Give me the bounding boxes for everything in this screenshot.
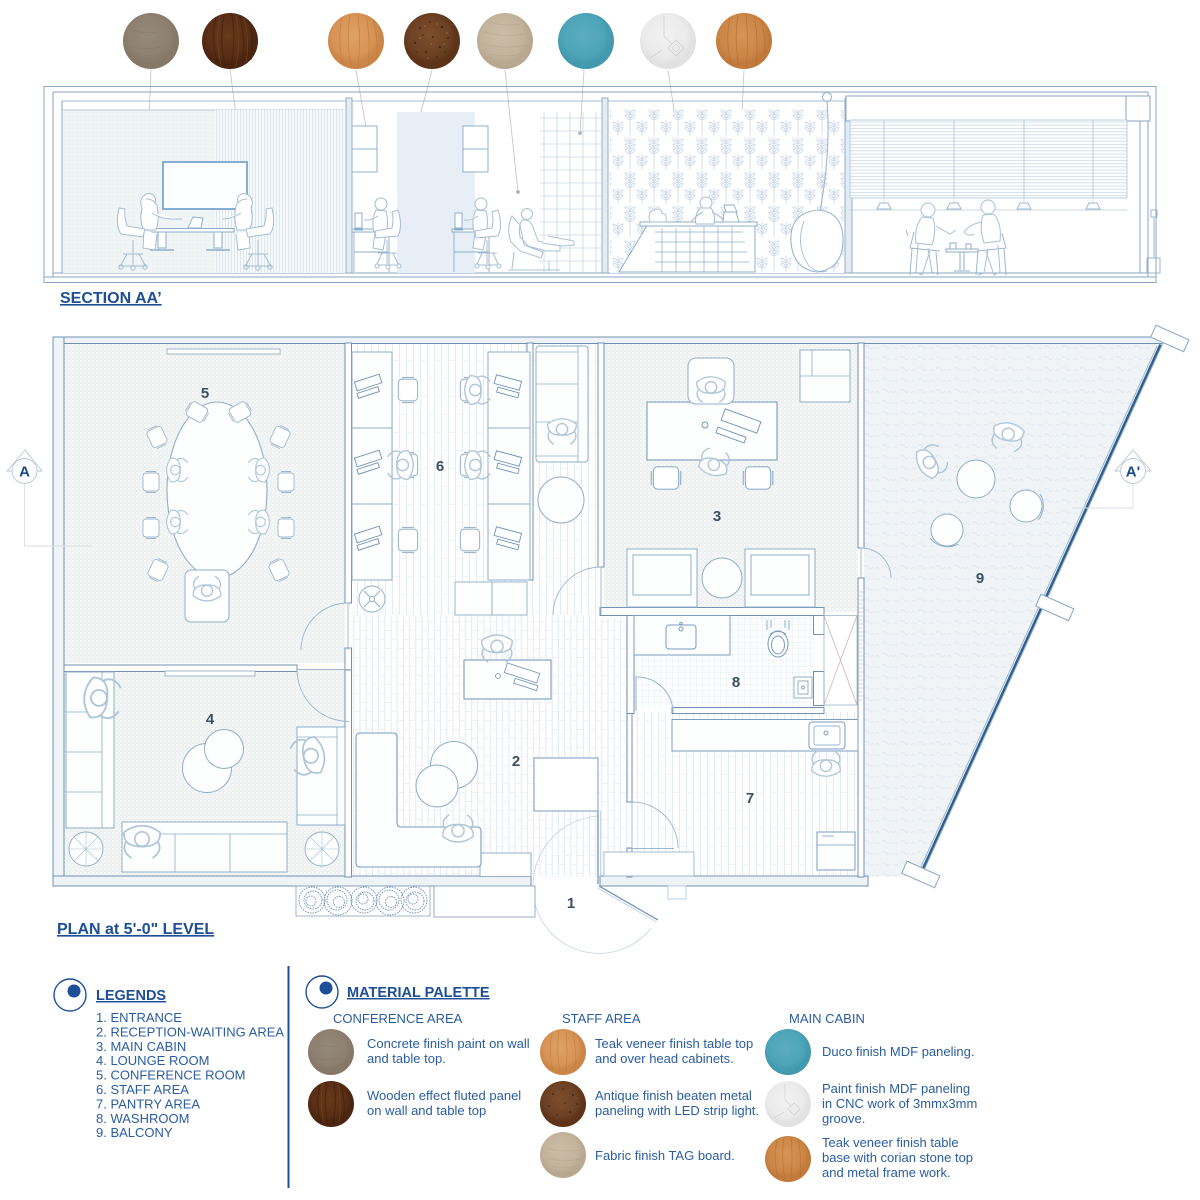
svg-text:5. CONFERENCE ROOM: 5. CONFERENCE ROOM <box>96 1068 246 1083</box>
svg-text:Teak veneer finish table top: Teak veneer finish table top <box>595 1036 753 1051</box>
svg-text:Concrete finish paint on wall: Concrete finish paint on wall <box>367 1036 530 1051</box>
svg-text:LEGENDS: LEGENDS <box>96 988 166 1004</box>
svg-text:7: 7 <box>746 790 754 807</box>
svg-text:9: 9 <box>976 570 984 587</box>
svg-text:8. WASHROOM: 8. WASHROOM <box>96 1111 189 1126</box>
svg-text:and table top.: and table top. <box>367 1051 446 1066</box>
svg-text:CONFERENCE AREA: CONFERENCE AREA <box>333 1011 463 1026</box>
svg-text:Antique finish beaten metal: Antique finish beaten metal <box>595 1088 752 1103</box>
svg-text:in CNC work of 3mmx3mm: in CNC work of 3mmx3mm <box>822 1096 977 1111</box>
svg-text:Duco finish MDF paneling.: Duco finish MDF paneling. <box>822 1044 974 1059</box>
svg-text:7. PANTRY AREA: 7. PANTRY AREA <box>96 1096 200 1111</box>
svg-text:SECTION AA’: SECTION AA’ <box>60 290 162 307</box>
svg-text:groove.: groove. <box>822 1111 865 1126</box>
svg-text:6: 6 <box>436 458 444 475</box>
svg-text:6. STAFF AREA: 6. STAFF AREA <box>96 1082 189 1097</box>
svg-text:2: 2 <box>512 753 520 770</box>
svg-text:2. RECEPTION-WAITING AREA: 2. RECEPTION-WAITING AREA <box>96 1024 284 1039</box>
svg-text:A': A' <box>1126 464 1140 481</box>
svg-text:3: 3 <box>713 508 721 525</box>
svg-text:Teak veneer finish table: Teak veneer finish table <box>822 1135 959 1150</box>
svg-text:on wall and table top: on wall and table top <box>367 1103 486 1118</box>
svg-text:4. LOUNGE ROOM: 4. LOUNGE ROOM <box>96 1053 209 1068</box>
svg-text:4: 4 <box>206 711 215 728</box>
svg-text:MATERIAL PALETTE: MATERIAL PALETTE <box>347 985 490 1001</box>
svg-text:5: 5 <box>201 385 209 402</box>
svg-text:Paint finish MDF paneling: Paint finish MDF paneling <box>822 1081 970 1096</box>
svg-text:3. MAIN CABIN: 3. MAIN CABIN <box>96 1039 186 1054</box>
svg-text:MAIN CABIN: MAIN CABIN <box>789 1011 865 1026</box>
svg-text:and metal frame work.: and metal frame work. <box>822 1165 951 1180</box>
svg-text:A: A <box>19 464 30 481</box>
svg-text:paneling with LED strip light.: paneling with LED strip light. <box>595 1103 759 1118</box>
svg-text:and over head cabinets.: and over head cabinets. <box>595 1051 734 1066</box>
svg-text:Fabric finish TAG board.: Fabric finish TAG board. <box>595 1148 735 1163</box>
svg-text:9. BALCONY: 9. BALCONY <box>96 1125 173 1140</box>
svg-text:PLAN at 5'-0" LEVEL: PLAN at 5'-0" LEVEL <box>57 921 214 938</box>
svg-text:1: 1 <box>567 895 575 912</box>
svg-text:8: 8 <box>732 674 740 691</box>
svg-text:1. ENTRANCE: 1. ENTRANCE <box>96 1010 182 1025</box>
svg-text:Wooden effect fluted panel: Wooden effect fluted panel <box>367 1088 521 1103</box>
svg-text:base with corian stone top: base with corian stone top <box>822 1150 973 1165</box>
svg-text:STAFF AREA: STAFF AREA <box>562 1011 641 1026</box>
